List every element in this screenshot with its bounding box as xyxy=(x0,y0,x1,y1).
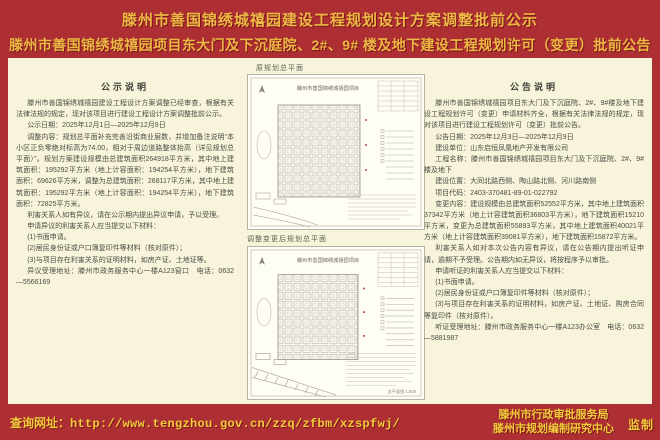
revised-plan-label: 调整变更后规划总平面 xyxy=(247,234,327,244)
north-arrow-icon xyxy=(259,85,265,93)
notice-paragraph: 变更内容：建设规模由总建筑面积52552平方米，其中地上建筑面积37342平方米… xyxy=(424,199,644,244)
notice-panel: 公示说明 滕州市善国锦绣城禧园建设工程设计方案调整已经审查，根据有关法律法规的规… xyxy=(8,58,652,404)
road-lines xyxy=(252,354,336,397)
org-approval-bureau: 滕州市行政审批服务局 xyxy=(493,408,614,422)
notice-paragraph: (3)与项目存在利害关系的证明材料，如房产证、土地证、购房合同等复印件（核对原件… xyxy=(424,299,644,321)
notice-paragraph: (2)居民身份证或户口簿复印件等材料（核对原件）； xyxy=(16,243,234,254)
stadium-track-shape xyxy=(257,298,271,326)
org-planning-center: 滕州市规划编制研究中心 xyxy=(493,422,614,436)
legend-lines xyxy=(381,297,414,346)
north-arrow-icon xyxy=(259,257,265,265)
public-notice-section: 公示说明 滕州市善国锦绣城禧园建设工程设计方案调整已经审查，根据有关法律法规的规… xyxy=(16,80,234,288)
notice-paragraph: 公告日期：2025年12月3日—2025年12月9日 xyxy=(424,132,644,143)
notice-paragraph: 利害关系人如对本次公告内容有异议，请在公告期内提出听证申请，逾期不予受理。公告期… xyxy=(424,243,644,265)
notice-paragraph: 利害关系人如有异议，请在公示期内提出异议申请，予以受理。 xyxy=(16,210,234,221)
notice-paragraph: 异议受理地址：滕州市政务服务中心一楼A123窗口 电话：0632—5566169 xyxy=(16,266,234,288)
page-title: 滕州市善国锦绣城禧园建设工程规划设计方案调整批前公示 xyxy=(0,9,660,30)
notice-paragraph: 申请异议的利害关系人应当提交以下材料： xyxy=(16,221,234,232)
notes-block xyxy=(348,195,416,219)
notice-poster: 滕州市善国锦绣城禧园建设工程规划设计方案调整批前公示 滕州市善国锦绣城禧园项目东… xyxy=(0,0,660,440)
notice-paragraph: 项目代码：2403-370481-89-01-022792 xyxy=(424,188,644,199)
supervision-seal: 监制 xyxy=(628,416,654,433)
building-cluster xyxy=(278,105,360,197)
title-block-table xyxy=(378,81,418,111)
title-block-table xyxy=(378,253,418,287)
query-url-label: 查询网址： xyxy=(10,416,70,430)
notice-paragraph: 工程名称：滕州市善国锦绣城禧园项目东大门及下沉庭院、2#、9#楼及地下 xyxy=(424,154,644,176)
left-notice-heading: 公示说明 xyxy=(16,80,234,93)
public-announcement-section: 公告说明 滕州市善国锦绣城禧园项目东大门及下沉庭院、2#、9#楼及地下建设工程规… xyxy=(424,80,644,344)
notice-paragraph: 滕州市善国锦绣城禧园建设工程设计方案调整已经审查，根据有关法律法规的规定，现对该… xyxy=(16,98,234,120)
query-url-line: 查询网址：http://www.tengzhou.gov.cn/zzq/zfbm… xyxy=(10,414,400,431)
notice-paragraph: (1)书面申请。 xyxy=(424,277,644,288)
notice-paragraph: 滕州市善国锦绣城禧园项目东大门及下沉庭院、2#、9#楼及地下建设工程规划许可（变… xyxy=(424,98,644,132)
right-notice-heading: 公告说明 xyxy=(424,80,644,93)
legend-lines xyxy=(381,130,414,180)
notice-paragraph: 调整内容：规划总平面补充完善沿街商业层数，并增加备注说明“本小区正负零绝对标高为… xyxy=(16,132,234,210)
notice-paragraph: (1)书面申请。 xyxy=(16,232,234,243)
query-url-link[interactable]: http://www.tengzhou.gov.cn/zzq/zfbm/xzsp… xyxy=(70,417,400,431)
notice-paragraph: 申请听证的利害关系人应当提交以下材料： xyxy=(424,266,644,277)
footer-bar: 查询网址：http://www.tengzhou.gov.cn/zzq/zfbm… xyxy=(0,404,660,440)
revised-site-plan-image: 滕州市善国锦绣城禧园项目 xyxy=(247,246,425,400)
site-plan-drawing: 滕州市善国锦绣城禧园项目 xyxy=(248,75,424,229)
building-cluster xyxy=(278,275,358,360)
plan-scale-text: 总平面图 1:500 xyxy=(388,388,417,394)
notice-paragraph: 公示日期：2025年12月1日—2025年12月9日 xyxy=(16,120,234,131)
road-lines xyxy=(253,193,318,227)
notice-paragraph: (3)与项目存在利害关系的证明材料，如房产证、土地证等。 xyxy=(16,255,234,266)
site-plan-drawing: 滕州市善国锦绣城禧园项目 xyxy=(248,247,424,399)
issuing-orgs: 滕州市行政审批服务局 滕州市规划编制研究中心 xyxy=(493,408,614,437)
notice-paragraph: 建设位置：大同北路西侧、陶山路北侧、河川路南侧 xyxy=(424,176,644,187)
notice-paragraph: 建设单位：山东启恒凤凰地产开发有限公司 xyxy=(424,143,644,154)
original-plan-label: 原规划总平面 xyxy=(256,63,304,73)
notice-paragraph: 听证受理地址：滕州市政务服务中心一楼A123办公室 电话：0632—588198… xyxy=(424,322,644,344)
notice-paragraph: (2)居民身份证或户口簿复印件等材料（核对原件）； xyxy=(424,288,644,299)
plan-title-text: 滕州市善国锦绣城禧园项目 xyxy=(297,84,359,92)
original-site-plan-image: 滕州市善国锦绣城禧园项目 xyxy=(247,74,425,230)
stadium-track-shape xyxy=(257,131,271,159)
plan-title-text: 滕州市善国锦绣城禧园项目 xyxy=(297,256,359,264)
page-subtitle: 滕州市善国锦绣城禧园项目东大门及下沉庭院、2#、9# 楼及地下建设工程规划许可（… xyxy=(0,35,660,55)
site-plan-column: 原规划总平面 滕州市善国锦绣城禧园项目 xyxy=(240,58,428,404)
